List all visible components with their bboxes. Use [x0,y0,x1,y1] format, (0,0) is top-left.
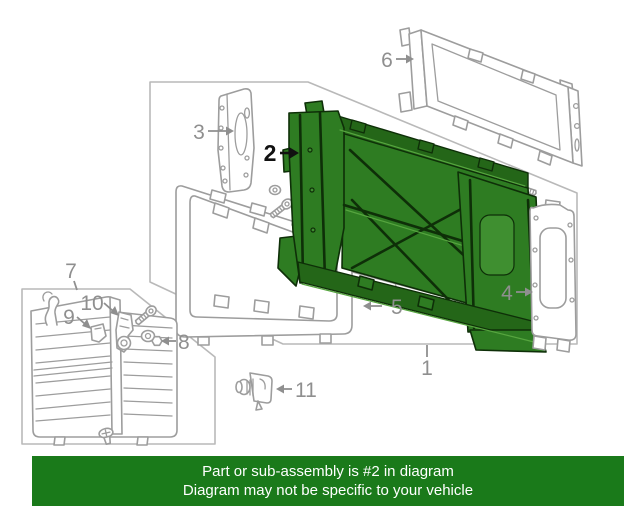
callout-7-label: 7 [65,260,77,283]
callout-1: 1 [421,345,433,380]
banner-line2: Diagram may not be specific to your vehi… [32,481,624,500]
callout-7: 7 [65,260,77,290]
assembly-diagram-image[interactable]: 1 2 3 4 5 6 7 [0,0,640,512]
part-3-side-bracket [218,89,254,192]
part-11-sensor [236,373,272,410]
callout-1-label: 1 [421,357,433,380]
banner-line1: Part or sub-assembly is #2 in diagram [32,462,624,481]
callout-11-label: 11 [295,379,317,402]
callout-2-label: 2 [264,140,277,166]
grommet-icon [270,186,281,195]
bolt-icon [268,197,294,220]
part-4-side-bracket [530,200,576,352]
callout-11: 11 [276,379,317,402]
callout-3-label: 3 [193,121,205,144]
callout-8-label: 8 [178,331,190,354]
callout-6-label: 6 [381,49,393,72]
callout-6: 6 [381,49,414,72]
part-10-actuator [116,312,133,352]
exploded-parts-diagram: 1 2 3 4 5 6 7 [0,0,640,456]
callout-10-label: 10 [80,292,103,315]
callout-5-label: 5 [391,296,403,319]
callout-4-label: 4 [501,282,513,305]
part-7-grille-shutter [31,292,177,445]
callout-9-label: 9 [63,306,75,329]
highlight-notice-banner: Part or sub-assembly is #2 in diagram Di… [32,456,624,506]
